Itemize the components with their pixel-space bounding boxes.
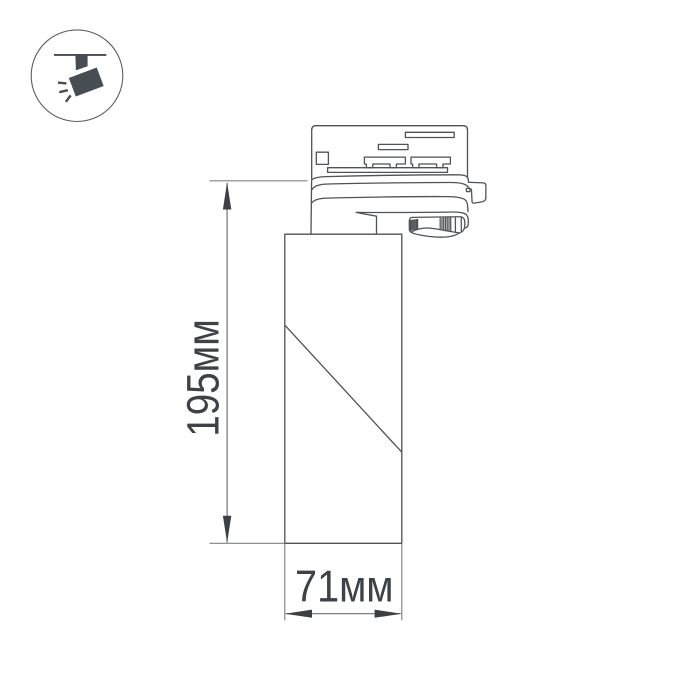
svg-text:195мм: 195мм: [177, 319, 228, 437]
svg-text:71мм: 71мм: [295, 563, 394, 612]
